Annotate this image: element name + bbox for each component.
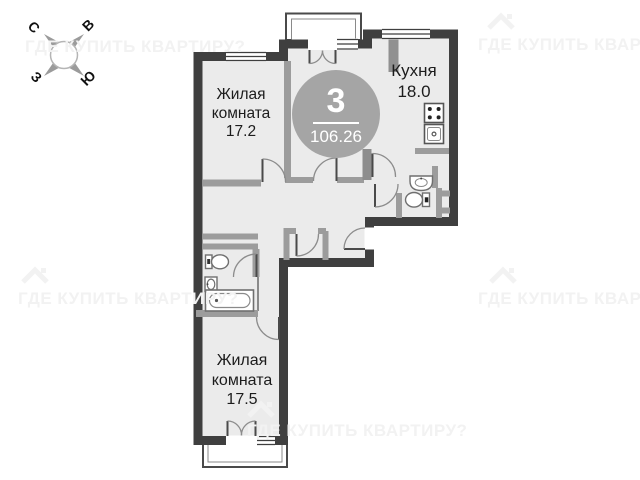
- floorplan-page: 3 106.26 Жилая комната 17.2 Кухня 18.0 Ж…: [0, 0, 640, 480]
- room-area: 18.0: [373, 81, 455, 102]
- compass-west: З: [28, 68, 46, 86]
- house-watermark-icon: [246, 400, 276, 424]
- house-watermark-icon: [20, 266, 50, 290]
- badge-divider: [313, 122, 359, 124]
- watermark-text: ГДЕ КУПИТЬ КВАРТИРУ?: [247, 421, 467, 441]
- watermark-text: ГДЕ КУПИТЬ КВАРТИРУ?: [18, 289, 238, 309]
- watermark-text: ГДЕ КУПИТЬ КВАРТИРУ?: [25, 37, 245, 57]
- watermark-text: ГДЕ КУПИТЬ КВАРТИРУ?: [478, 35, 640, 55]
- compass-north: С: [25, 18, 43, 36]
- room-label-living1: Жилая комната 17.2: [196, 86, 286, 142]
- balcony-bottom: [203, 444, 287, 467]
- house-watermark-icon: [486, 12, 516, 36]
- toilet-icon: [206, 255, 229, 269]
- compass-south: Ю: [77, 67, 99, 89]
- balcony-top: [286, 14, 361, 41]
- kitchen-sink-icon: [425, 125, 444, 144]
- room-area: 17.2: [196, 123, 286, 142]
- total-area: 106.26: [310, 128, 362, 145]
- room-name: Жилая: [195, 351, 289, 371]
- room-name: Кухня: [373, 60, 455, 81]
- house-watermark-icon: [488, 266, 518, 290]
- compass-east: В: [79, 16, 97, 34]
- room-name: Жилая: [196, 86, 286, 105]
- watermark-text: ГДЕ КУПИТЬ КВАРТИРУ?: [478, 289, 640, 309]
- rooms-count: 3: [327, 84, 346, 118]
- apartment-summary-badge: 3 106.26: [292, 70, 380, 158]
- room-name: комната: [195, 371, 289, 391]
- toilet-icon: [406, 193, 430, 208]
- washbasin-icon: [410, 176, 433, 191]
- room-name: комната: [196, 105, 286, 124]
- room-label-kitchen: Кухня 18.0: [373, 60, 455, 102]
- stove-icon: [425, 104, 444, 123]
